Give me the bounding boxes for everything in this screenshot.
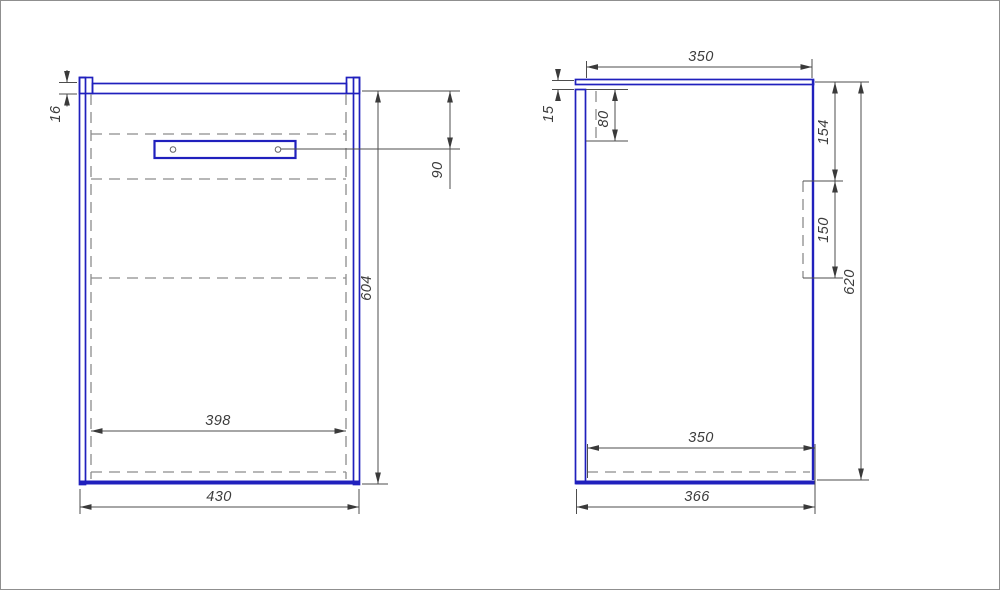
front-dim-rail-offset-label: 90	[430, 162, 446, 179]
front-left-side-panel	[80, 78, 86, 485]
mounting-hole-right	[275, 147, 281, 153]
side-dimensions: 350 15 80 154 150	[541, 49, 869, 514]
front-top-rail	[93, 84, 347, 94]
side-dim-bracket-offset-label: 154	[816, 119, 832, 144]
side-dim-overall-height-label: 620	[842, 269, 858, 294]
side-dim-top-depth-label: 350	[688, 49, 713, 65]
mounting-hole-left	[170, 147, 176, 153]
technical-drawing: 16 90 604 398 430	[1, 1, 1000, 590]
front-dimensions: 16 90 604 398 430	[48, 70, 460, 514]
front-dim-rail-thickness-label: 16	[48, 105, 64, 122]
front-dim-height-label: 604	[359, 275, 375, 300]
side-dim-hanger-height-label: 80	[596, 111, 612, 128]
front-view: 16 90 604 398 430	[48, 70, 460, 514]
front-dim-inner-width-label: 398	[205, 413, 230, 429]
side-back-panel	[576, 90, 586, 484]
drawing-sheet: 16 90 604 398 430	[0, 0, 1000, 590]
side-structure	[576, 80, 816, 484]
side-dim-overall-depth-label: 366	[684, 489, 710, 505]
side-view: 350 15 80 154 150	[541, 49, 869, 514]
side-dim-bracket-height-label: 150	[816, 217, 832, 242]
side-dim-inner-depth-label: 350	[688, 430, 713, 446]
side-hidden-lines	[587, 91, 810, 472]
side-top-panel	[576, 80, 814, 85]
side-dim-back-gap-label: 15	[541, 105, 557, 122]
front-dim-overall-width-label: 430	[206, 489, 231, 505]
